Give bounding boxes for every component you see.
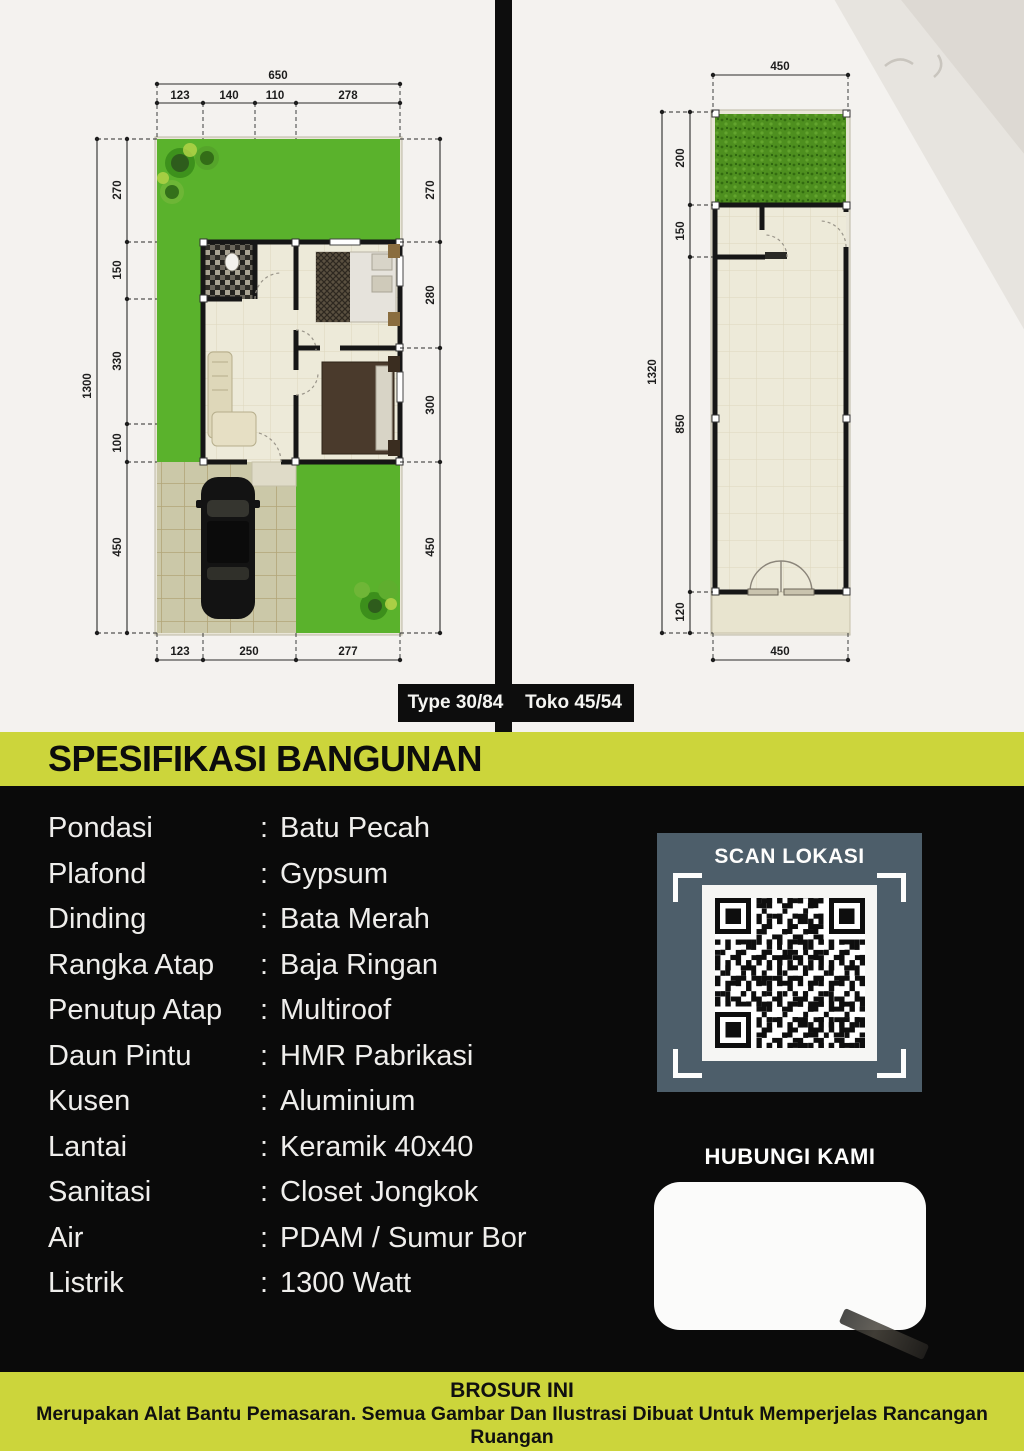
toko-badge: Toko 45/54	[513, 684, 634, 722]
spec-label: Plafond	[48, 858, 260, 891]
svg-text:123: 123	[170, 90, 189, 102]
spec-row: Plafond : Gypsum	[48, 852, 608, 898]
toko-badge-label: Toko 45/54	[525, 692, 622, 714]
spec-label: Sanitasi	[48, 1176, 260, 1209]
svg-text:100: 100	[112, 433, 124, 452]
spec-value: Aluminium	[280, 1085, 608, 1118]
spec-value: 1300 Watt	[280, 1267, 608, 1300]
svg-text:150: 150	[675, 221, 687, 240]
svg-text:250: 250	[239, 646, 258, 658]
spec-value: Bata Merah	[280, 903, 608, 936]
spec-row: Listrik : 1300 Watt	[48, 1261, 608, 1307]
svg-text:650: 650	[268, 70, 287, 82]
brochure-page: 650 123 140 110 278 1300 270 150 330 100…	[0, 0, 1024, 1451]
plan1-site	[155, 137, 403, 635]
bracket-corner-icon	[877, 873, 906, 902]
svg-text:110: 110	[266, 90, 285, 102]
contact-blank-box	[654, 1182, 926, 1330]
spec-row: Air : PDAM / Sumur Bor	[48, 1216, 608, 1262]
spec-label: Dinding	[48, 903, 260, 936]
spec-separator: :	[260, 1176, 280, 1209]
spec-separator: :	[260, 1222, 280, 1255]
spec-label: Air	[48, 1222, 260, 1255]
car-icon	[196, 477, 260, 619]
spec-separator: :	[260, 903, 280, 936]
spec-label: Lantai	[48, 1131, 260, 1164]
svg-text:150: 150	[112, 260, 124, 279]
spec-label: Listrik	[48, 1267, 260, 1300]
bracket-corner-icon	[877, 1049, 906, 1078]
spec-row: Daun Pintu : HMR Pabrikasi	[48, 1034, 608, 1080]
footer-title: BROSUR INI	[0, 1379, 1024, 1403]
floor-plans-section: 650 123 140 110 278 1300 270 150 330 100…	[0, 0, 1024, 732]
spec-row: Lantai : Keramik 40x40	[48, 1125, 608, 1171]
svg-text:300: 300	[425, 395, 437, 414]
page-title: SPESIFIKASI BANGUNAN	[48, 738, 482, 780]
bed-icon	[322, 356, 400, 456]
spec-value: Keramik 40x40	[280, 1131, 608, 1164]
qr-code-icon	[715, 898, 865, 1048]
spec-value: HMR Pabrikasi	[280, 1040, 608, 1073]
spec-row: Penutup Atap : Multiroof	[48, 988, 608, 1034]
svg-text:450: 450	[770, 646, 789, 658]
svg-text:450: 450	[770, 61, 789, 73]
type-badge: Type 30/84	[398, 684, 513, 722]
spec-value: Gypsum	[280, 858, 608, 891]
spec-separator: :	[260, 812, 280, 845]
spec-row: Pondasi : Batu Pecah	[48, 806, 608, 852]
svg-text:140: 140	[219, 90, 238, 102]
footer-disclaimer-line1: Merupakan Alat Bantu Pemasaran. Semua Ga…	[0, 1403, 1024, 1449]
spec-separator: :	[260, 994, 280, 1027]
spec-label: Rangka Atap	[48, 949, 260, 982]
bracket-corner-icon	[673, 873, 702, 902]
spec-value: Closet Jongkok	[280, 1176, 608, 1209]
svg-text:120: 120	[675, 602, 687, 621]
svg-text:450: 450	[425, 537, 437, 556]
spec-label: Pondasi	[48, 812, 260, 845]
svg-text:1320: 1320	[647, 359, 659, 385]
svg-text:123: 123	[170, 646, 189, 658]
svg-text:450: 450	[112, 537, 124, 556]
spec-separator: :	[260, 1267, 280, 1300]
svg-text:270: 270	[425, 180, 437, 199]
spec-separator: :	[260, 1131, 280, 1164]
scan-location-title: SCAN LOKASI	[657, 845, 922, 869]
svg-text:330: 330	[112, 351, 124, 370]
contact-title: HUBUNGI KAMI	[625, 1144, 955, 1170]
spec-value: Batu Pecah	[280, 812, 608, 845]
bracket-corner-icon	[673, 1049, 702, 1078]
plan2-porch	[712, 592, 850, 633]
svg-text:200: 200	[675, 148, 687, 167]
spec-separator: :	[260, 1040, 280, 1073]
spec-label: Kusen	[48, 1085, 260, 1118]
qr-code	[702, 885, 877, 1061]
svg-text:1300: 1300	[82, 373, 94, 399]
plan2-site	[711, 110, 850, 635]
plan2-garden	[715, 114, 846, 205]
spec-value: Baja Ringan	[280, 949, 608, 982]
scan-location-panel: SCAN LOKASI	[657, 833, 922, 1092]
spec-section: Pondasi : Batu Pecah Plafond : Gypsum Di…	[0, 786, 1024, 1372]
spec-row: Sanitasi : Closet Jongkok	[48, 1170, 608, 1216]
svg-text:278: 278	[338, 90, 358, 102]
spec-value: PDAM / Sumur Bor	[280, 1222, 608, 1255]
spec-row: Kusen : Aluminium	[48, 1079, 608, 1125]
spec-label: Daun Pintu	[48, 1040, 260, 1073]
bathroom	[205, 244, 255, 299]
spec-row: Dinding : Bata Merah	[48, 897, 608, 943]
spec-value: Multiroof	[280, 994, 608, 1027]
spec-separator: :	[260, 949, 280, 982]
door-leaf	[765, 252, 787, 259]
svg-text:277: 277	[338, 646, 357, 658]
spec-title-band: SPESIFIKASI BANGUNAN	[0, 732, 1024, 786]
floor-plan-drawing: 650 123 140 110 278 1300 270 150 330 100…	[0, 0, 1024, 732]
paper-curl-artifact	[885, 55, 941, 77]
svg-text:280: 280	[425, 285, 437, 304]
svg-text:270: 270	[112, 180, 124, 199]
spec-separator: :	[260, 858, 280, 891]
spec-label: Penutup Atap	[48, 994, 260, 1027]
svg-text:850: 850	[675, 414, 687, 433]
plans-divider-bar	[495, 0, 512, 732]
type-badge-label: Type 30/84	[408, 692, 504, 714]
spec-separator: :	[260, 1085, 280, 1118]
spec-list: Pondasi : Batu Pecah Plafond : Gypsum Di…	[48, 806, 608, 1307]
bed-icon	[316, 244, 400, 326]
spec-row: Rangka Atap : Baja Ringan	[48, 943, 608, 989]
footer-band: BROSUR INI Merupakan Alat Bantu Pemasara…	[0, 1372, 1024, 1451]
